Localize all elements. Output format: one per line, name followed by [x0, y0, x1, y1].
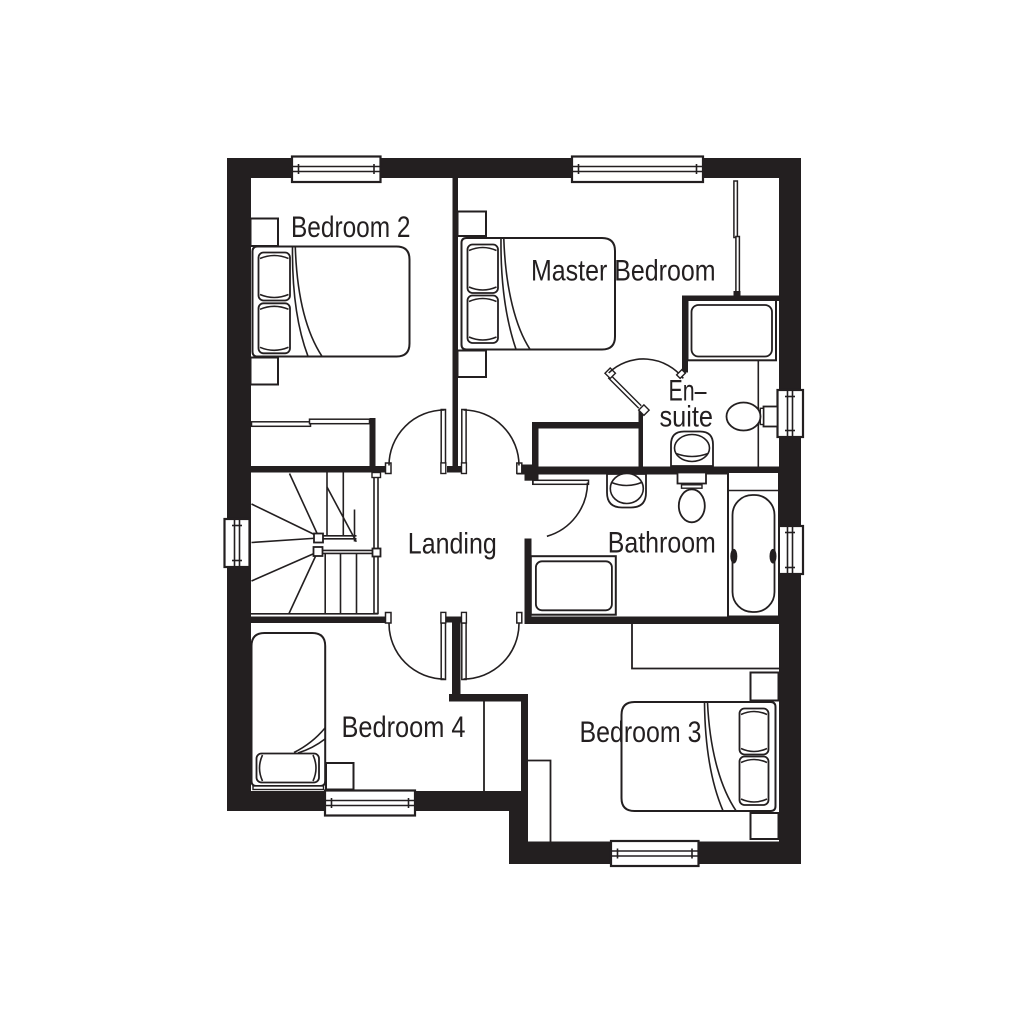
svg-text:Bedroom 2: Bedroom 2 [291, 212, 411, 244]
svg-text:Bedroom 4: Bedroom 4 [342, 712, 466, 744]
svg-text:Bedroom 3: Bedroom 3 [580, 717, 702, 749]
svg-text:Bathroom: Bathroom [608, 528, 716, 560]
svg-text:suite: suite [660, 401, 714, 433]
svg-text:Master Bedroom: Master Bedroom [531, 256, 716, 288]
svg-text:Landing: Landing [408, 529, 497, 561]
